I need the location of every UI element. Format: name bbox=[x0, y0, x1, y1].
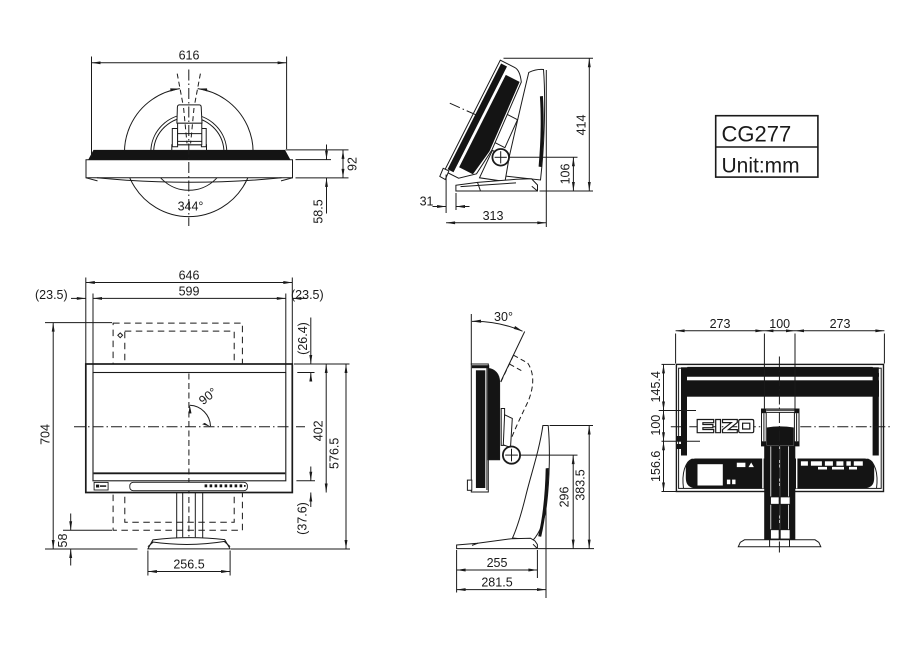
svg-text:313: 313 bbox=[483, 209, 504, 223]
svg-text:106: 106 bbox=[559, 164, 573, 185]
svg-text:414: 414 bbox=[575, 115, 589, 136]
svg-text:(37.6): (37.6) bbox=[295, 502, 309, 535]
svg-text:58: 58 bbox=[56, 534, 70, 548]
svg-text:145.4: 145.4 bbox=[649, 371, 663, 402]
svg-text:CG277: CG277 bbox=[722, 121, 792, 146]
svg-text:92: 92 bbox=[346, 157, 360, 171]
svg-text:296: 296 bbox=[558, 487, 572, 508]
svg-text:(23.5): (23.5) bbox=[35, 288, 68, 302]
svg-text:646: 646 bbox=[179, 269, 200, 283]
svg-text:402: 402 bbox=[312, 420, 326, 441]
svg-text:(26.4): (26.4) bbox=[296, 322, 310, 355]
svg-text:704: 704 bbox=[39, 424, 53, 445]
svg-text:273: 273 bbox=[710, 317, 731, 331]
svg-text:58.5: 58.5 bbox=[312, 199, 326, 223]
svg-text:Unit:mm: Unit:mm bbox=[722, 155, 800, 178]
svg-text:31: 31 bbox=[420, 194, 434, 208]
svg-text:576.5: 576.5 bbox=[327, 438, 341, 469]
svg-text:156.6: 156.6 bbox=[649, 451, 663, 482]
svg-text:100: 100 bbox=[649, 415, 663, 436]
svg-text:344°: 344° bbox=[178, 200, 204, 214]
svg-text:383.5: 383.5 bbox=[574, 469, 588, 500]
svg-text:255: 255 bbox=[487, 556, 508, 570]
svg-text:616: 616 bbox=[179, 49, 200, 63]
svg-text:281.5: 281.5 bbox=[481, 576, 512, 590]
svg-text:100: 100 bbox=[769, 317, 790, 331]
svg-text:(23.5): (23.5) bbox=[291, 288, 324, 302]
svg-text:599: 599 bbox=[179, 284, 200, 298]
svg-text:273: 273 bbox=[830, 317, 851, 331]
svg-text:30°: 30° bbox=[494, 310, 513, 324]
svg-text:256.5: 256.5 bbox=[173, 558, 204, 572]
